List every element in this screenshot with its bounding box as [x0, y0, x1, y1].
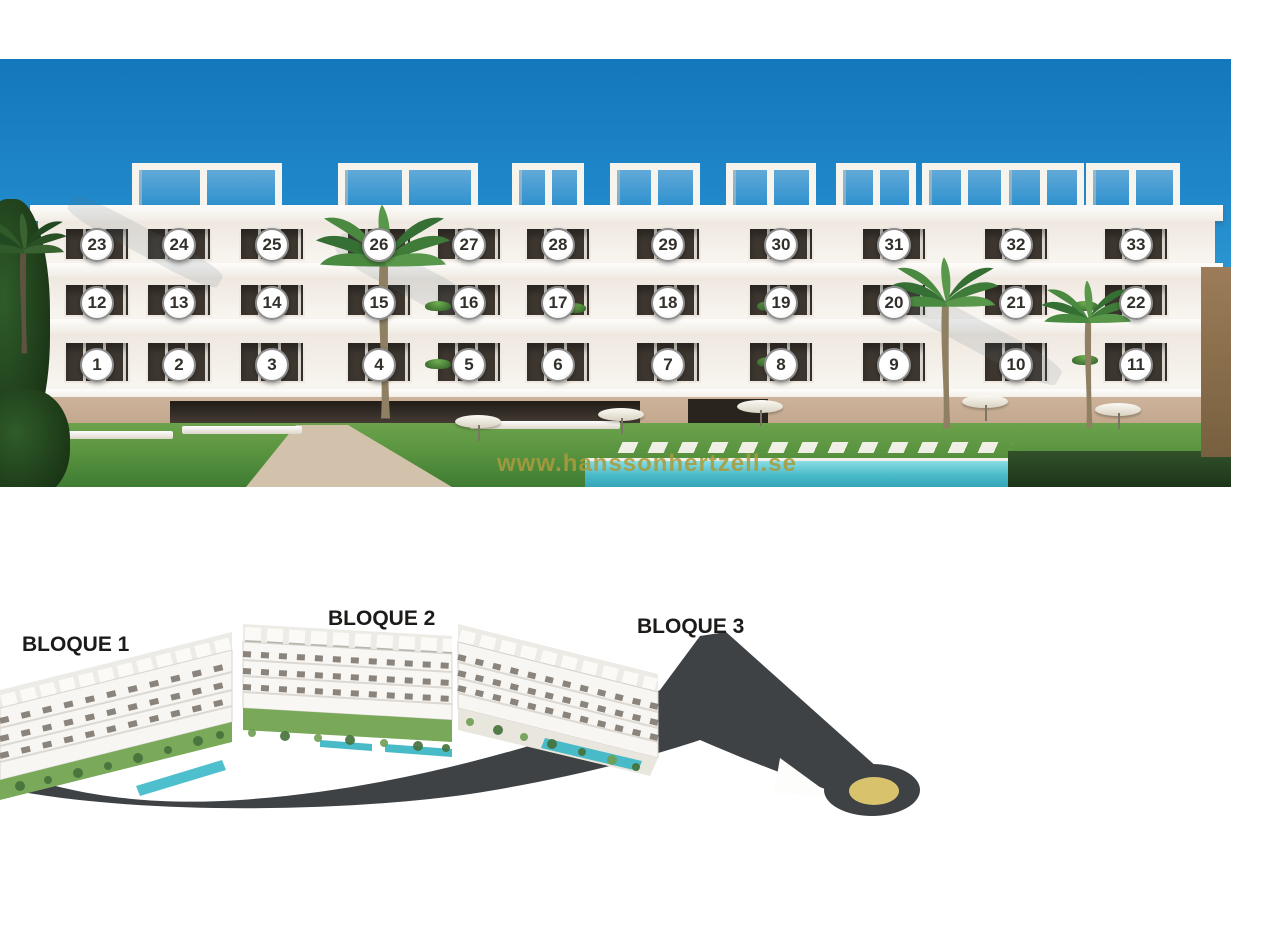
- roundabout-center: [849, 777, 899, 805]
- unit-number-badge: 8: [764, 348, 798, 382]
- planter-wall: [55, 431, 173, 439]
- unit-number-badge: 25: [255, 228, 289, 262]
- unit-number-badge: 15: [362, 286, 396, 320]
- unit-number-badge: 13: [162, 286, 196, 320]
- rooftop-pergola: [726, 163, 816, 207]
- roof-slab: [30, 205, 1223, 221]
- dark-hedge: [1008, 451, 1231, 487]
- bloque-1-label: BLOQUE 1: [22, 633, 129, 657]
- unit-number-badge: 18: [651, 286, 685, 320]
- unit-number-badge: 1: [80, 348, 114, 382]
- block-1: [0, 632, 232, 800]
- unit-number-badge: 27: [452, 228, 486, 262]
- palm-tree: [888, 255, 1000, 433]
- unit-number-badge: 32: [999, 228, 1033, 262]
- unit-number-badge: 14: [255, 286, 289, 320]
- unit-number-badge: 11: [1119, 348, 1153, 382]
- rooftop-pergola: [1086, 163, 1180, 207]
- unit-number-badge: 19: [764, 286, 798, 320]
- facade-render: 2324252627282930313233121314151617181920…: [0, 59, 1231, 487]
- unit-number-badge: 20: [877, 286, 911, 320]
- parasol: [737, 400, 783, 413]
- unit-number-badge: 17: [541, 286, 575, 320]
- unit-number-badge: 26: [362, 228, 396, 262]
- unit-number-badge: 33: [1119, 228, 1153, 262]
- unit-number-badge: 4: [362, 348, 396, 382]
- rooftop-pergola: [132, 163, 282, 207]
- unit-number-badge: 3: [255, 348, 289, 382]
- rooftop-pergola: [922, 163, 1008, 207]
- rooftop-pergola: [1002, 163, 1084, 207]
- unit-number-badge: 31: [877, 228, 911, 262]
- unit-number-badge: 16: [452, 286, 486, 320]
- watermark: www.hanssonhertzell.se: [497, 450, 797, 478]
- unit-number-badge: 21: [999, 286, 1033, 320]
- bloque-3-label: BLOQUE 3: [637, 615, 744, 639]
- bloque-2-label: BLOQUE 2: [328, 607, 435, 631]
- parasol: [455, 415, 501, 428]
- unit-number-badge: 5: [452, 348, 486, 382]
- planter-wall: [182, 426, 302, 434]
- unit-number-badge: 2: [162, 348, 196, 382]
- unit-number-badge: 30: [764, 228, 798, 262]
- unit-number-badge: 12: [80, 286, 114, 320]
- site-aerial-render: BLOQUE 1 BLOQUE 2 BLOQUE 3: [0, 590, 925, 825]
- unit-number-badge: 29: [651, 228, 685, 262]
- rooftop-pergola: [512, 163, 584, 207]
- page: 2324252627282930313233121314151617181920…: [0, 0, 1280, 933]
- unit-number-badge: 6: [541, 348, 575, 382]
- palm-tree: [0, 209, 68, 359]
- unit-number-badge: 10: [999, 348, 1033, 382]
- site-plan-graphic: [0, 590, 925, 825]
- rooftop-pergola: [610, 163, 700, 207]
- unit-number-badge: 9: [877, 348, 911, 382]
- block-3: [458, 624, 658, 776]
- unit-number-badge: 24: [162, 228, 196, 262]
- unit-number-badge: 28: [541, 228, 575, 262]
- unit-number-badge: 7: [651, 348, 685, 382]
- parasol: [598, 408, 644, 421]
- unit-number-badge: 22: [1119, 286, 1153, 320]
- side-wall: [1201, 267, 1231, 457]
- rooftop-pergola: [836, 163, 916, 207]
- unit-number-badge: 23: [80, 228, 114, 262]
